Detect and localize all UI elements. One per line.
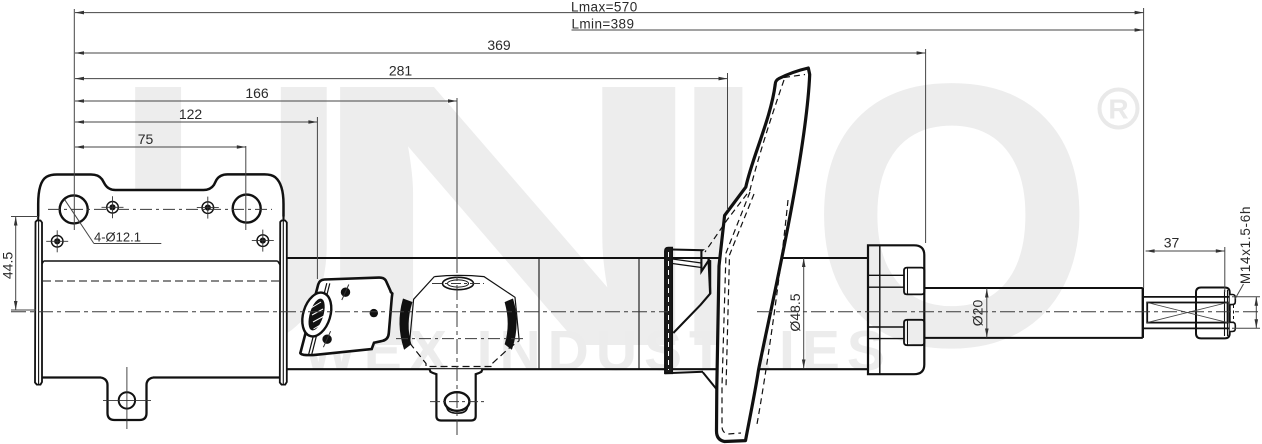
svg-text:281: 281 (389, 63, 413, 79)
svg-text:Ø20: Ø20 (970, 300, 986, 327)
svg-text:R: R (1108, 94, 1128, 125)
svg-text:44.5: 44.5 (0, 252, 15, 279)
svg-text:75: 75 (138, 131, 154, 147)
svg-text:166: 166 (245, 85, 269, 101)
svg-text:122: 122 (179, 106, 203, 122)
svg-text:4-Ø12.1: 4-Ø12.1 (94, 230, 141, 245)
svg-text:Lmin=389: Lmin=389 (572, 17, 635, 32)
svg-text:369: 369 (487, 37, 511, 53)
svg-text:Ø48.5: Ø48.5 (787, 293, 803, 331)
svg-text:Lmax=570: Lmax=570 (571, 0, 638, 15)
svg-text:M14x1.5-6h: M14x1.5-6h (1238, 206, 1253, 284)
svg-text:37: 37 (1164, 235, 1180, 251)
